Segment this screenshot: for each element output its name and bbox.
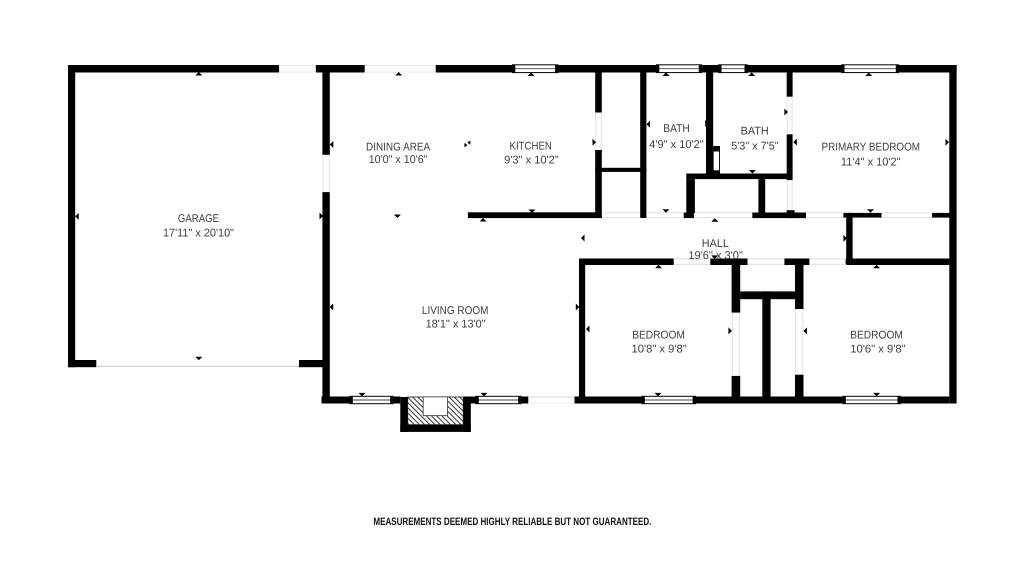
svg-text:4'9" x 10'2": 4'9" x 10'2" xyxy=(649,139,704,151)
svg-text:BATH: BATH xyxy=(663,123,689,135)
svg-text:18'1" x 13'0": 18'1" x 13'0" xyxy=(426,318,486,330)
svg-text:11'4" x 10'2": 11'4" x 10'2" xyxy=(841,156,901,168)
svg-text:LIVING ROOM: LIVING ROOM xyxy=(422,305,489,317)
svg-text:9'3" x 10'2": 9'3" x 10'2" xyxy=(504,154,559,166)
svg-text:10'0" x 10'6": 10'0" x 10'6" xyxy=(369,154,428,166)
svg-text:BEDROOM: BEDROOM xyxy=(632,329,685,341)
svg-text:10'8" x 9'8": 10'8" x 9'8" xyxy=(632,343,687,355)
svg-text:GARAGE: GARAGE xyxy=(178,213,219,225)
svg-text:HALL: HALL xyxy=(702,238,729,250)
svg-text:17'11" x 20'10": 17'11" x 20'10" xyxy=(163,228,234,240)
svg-text:5'3" x 7'5": 5'3" x 7'5" xyxy=(731,140,778,152)
svg-text:10'6" x 9'8": 10'6" x 9'8" xyxy=(850,343,906,355)
svg-text:DINING AREA: DINING AREA xyxy=(366,142,431,154)
svg-text:KITCHEN: KITCHEN xyxy=(510,141,552,153)
svg-text:BATH: BATH xyxy=(741,126,769,138)
svg-text:PRIMARY BEDROOM: PRIMARY BEDROOM xyxy=(822,141,921,153)
svg-text:MEASUREMENTS DEEMED HIGHLY REL: MEASUREMENTS DEEMED HIGHLY RELIABLE BUT … xyxy=(373,516,651,528)
svg-text:19'6" x 3'0": 19'6" x 3'0" xyxy=(688,250,743,262)
svg-text:BEDROOM: BEDROOM xyxy=(850,329,903,341)
